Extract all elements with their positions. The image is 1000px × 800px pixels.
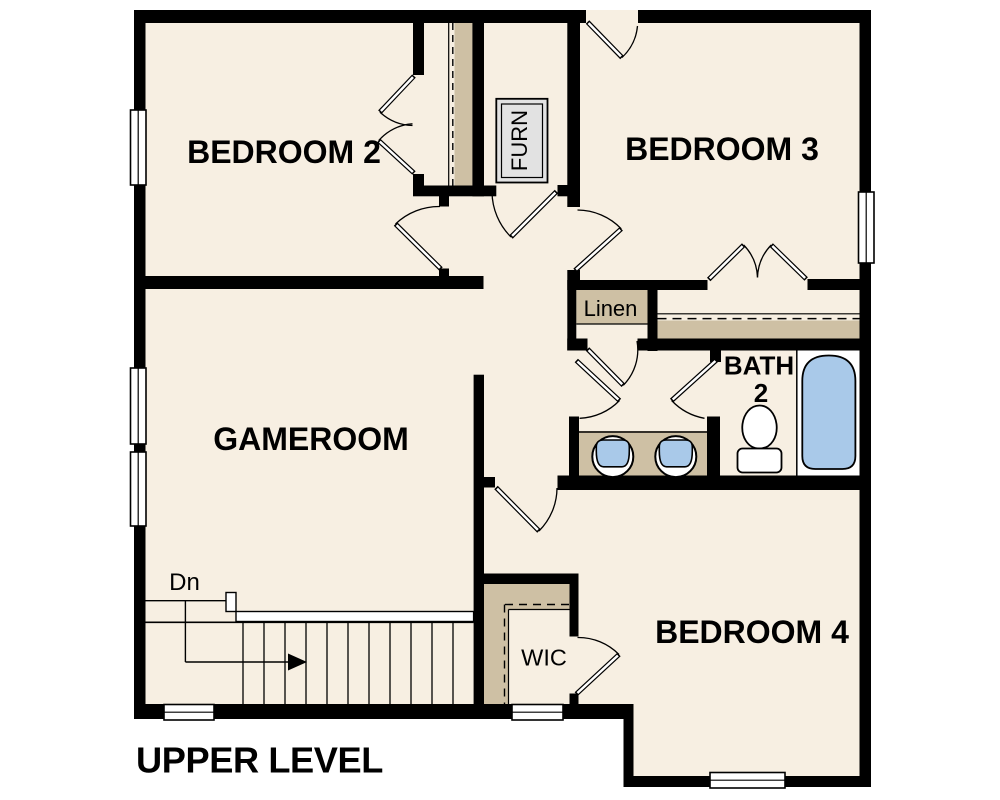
svg-text:BEDROOM 4: BEDROOM 4: [655, 614, 849, 650]
svg-text:BATH: BATH: [724, 351, 794, 381]
svg-text:WIC: WIC: [521, 645, 567, 671]
svg-text:FURN: FURN: [507, 110, 532, 171]
svg-text:UPPER LEVEL: UPPER LEVEL: [136, 740, 383, 781]
svg-text:BEDROOM 2: BEDROOM 2: [187, 134, 381, 170]
svg-text:Linen: Linen: [584, 296, 638, 321]
svg-text:BEDROOM 3: BEDROOM 3: [625, 131, 819, 167]
svg-text:2: 2: [754, 378, 768, 408]
svg-text:Dn: Dn: [169, 569, 200, 596]
svg-text:GAMEROOM: GAMEROOM: [213, 421, 409, 457]
